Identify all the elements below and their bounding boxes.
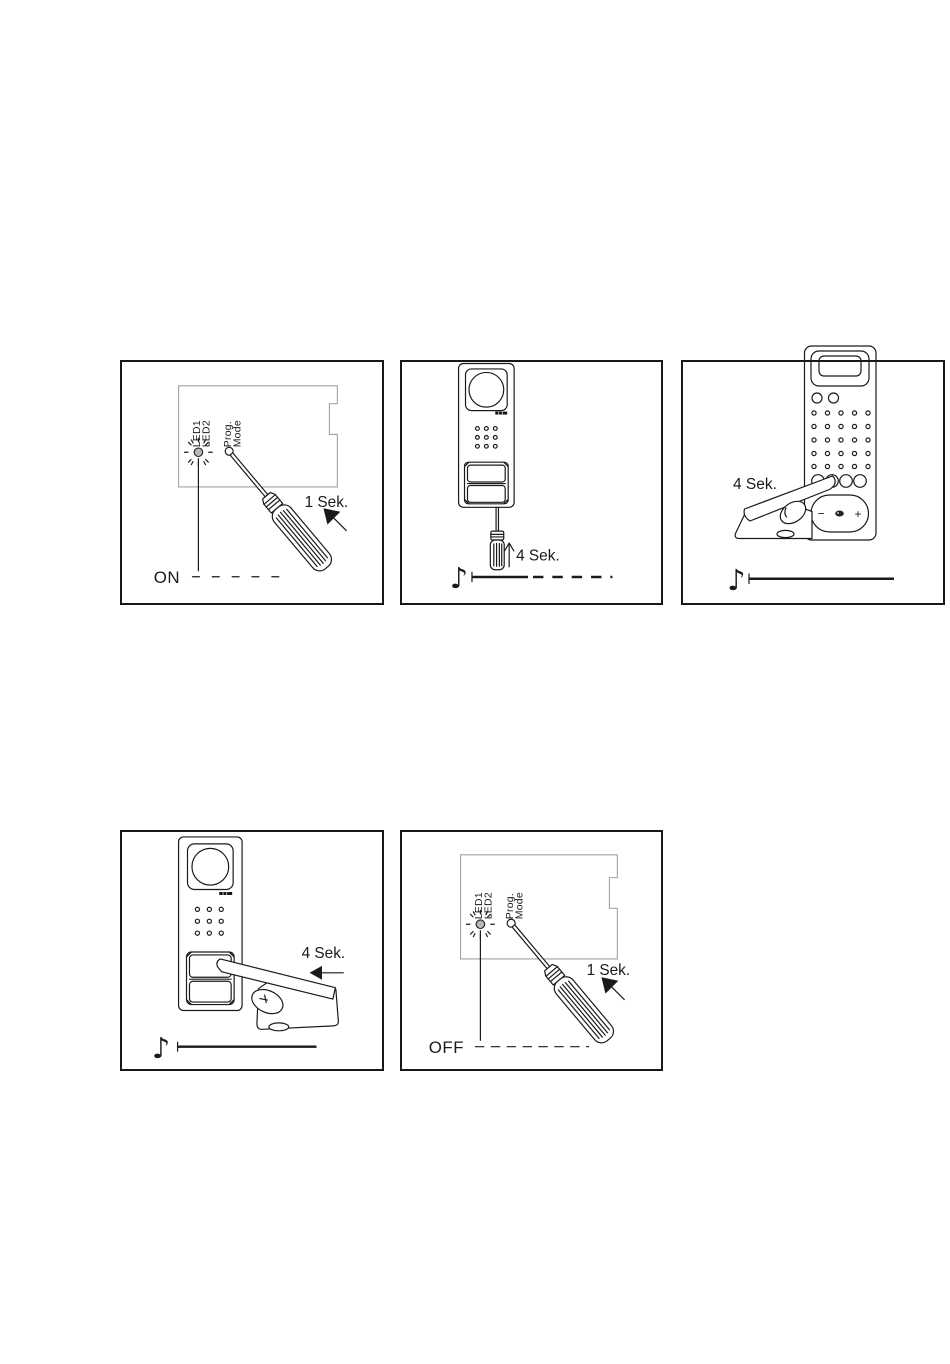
led-indicator-1 [812,393,822,403]
tone-timeline [472,572,612,581]
door-station [459,363,515,507]
volume-plus-label: + [854,507,861,521]
arrow-up-left-icon [601,977,624,999]
music-note-icon: ♪ [727,563,746,597]
screwdriver-icon [490,507,504,569]
panel-program-mode-off: LED1 LED2 Prog. Mode 1 Sek. OFF [400,830,663,1071]
volume-minus-label: − [817,507,824,521]
speaker-grille-icon [812,411,870,469]
arrow-up-icon [505,543,514,567]
state-label: ON [154,568,180,587]
led-indicator-2 [829,393,839,403]
volume-control-pill: − + [811,495,869,532]
arrow-up-left-icon [323,508,346,530]
panel-program-mode-on: LED1 LED2 Prog. Mode 1 Sek. ON [120,360,384,605]
tone-timeline [749,574,894,584]
tone-timeline [178,1042,317,1051]
duration-label: 1 Sek. [305,494,349,511]
panel-indoor-station-press: − + 4 Sek. ♪ [681,360,945,605]
music-note-icon: ♪ [152,1031,170,1065]
brand-mark [495,412,507,415]
duration-label: 1 Sek. [587,962,631,979]
fingernail [269,1023,289,1031]
arrow-left-icon [310,966,344,980]
screwdriver-icon [500,913,617,1046]
led2-label: LED2 [483,892,494,919]
panel-door-station-release: 4 Sek. ♪ [400,360,663,605]
panel-door-station-press: 4 Sek. ♪ [120,830,384,1071]
duration-label: 4 Sek. [302,945,346,962]
brand-mark [219,892,232,895]
led2-label: LED2 [201,420,212,447]
mode-label: Mode [515,892,526,919]
mode-label: Mode [233,420,244,447]
state-label: OFF [429,1038,464,1057]
indoor-station: − + [805,346,877,540]
door-station [179,837,243,1011]
duration-label: 4 Sek. [733,476,777,493]
manual-page: { "document": { "background": "#ffffff" … [0,0,950,1364]
key-icon [835,511,844,517]
music-note-icon: ♪ [450,561,468,595]
duration-label: 4 Sek. [516,547,560,564]
fingernail [777,530,794,537]
